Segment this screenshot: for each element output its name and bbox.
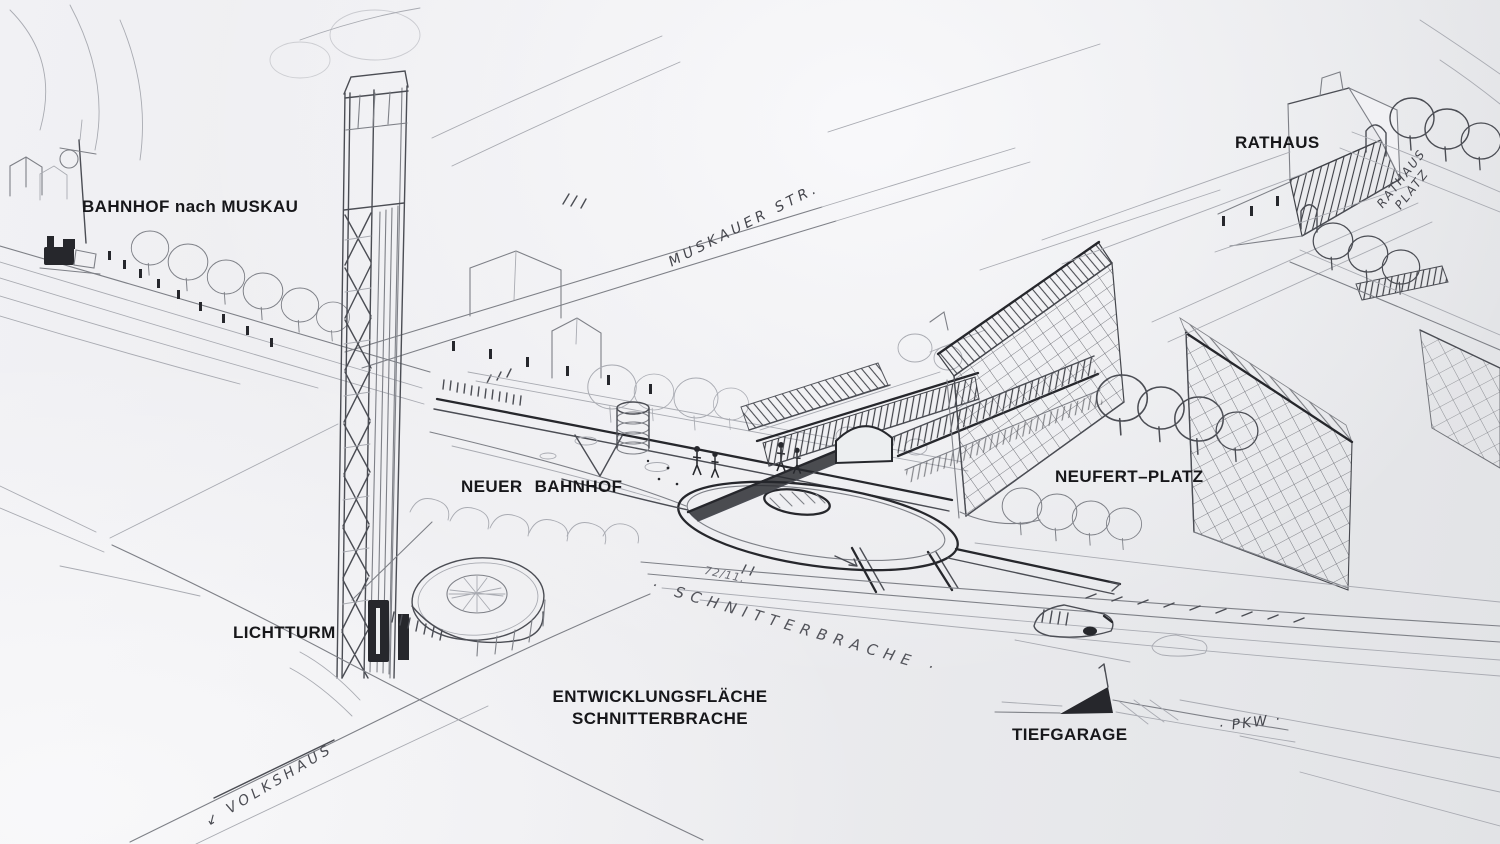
trees-plaza-south bbox=[1002, 488, 1141, 550]
label-neuer-bahnhof: NEUER BAHNHOF bbox=[461, 477, 622, 497]
trees-railway bbox=[131, 231, 349, 341]
station-platform bbox=[352, 372, 968, 600]
plaza-ellipse bbox=[562, 467, 1120, 594]
round-pavilion bbox=[409, 553, 546, 656]
label-lichtturm: LICHTTURM bbox=[233, 623, 336, 643]
label-entwicklungsflaeche-line1: ENTWICKLUNGSFLÄCHE bbox=[500, 686, 820, 708]
sketch-page: BAHNHOF nach MUSKAU RATHAUS NEUER BAHNHO… bbox=[0, 0, 1500, 844]
label-entwicklungsflaeche-line2: SCHNITTERBRACHE bbox=[500, 708, 820, 730]
label-entwicklungsflaeche-schnitterbrache: ENTWICKLUNGSFLÄCHE SCHNITTERBRACHE bbox=[500, 686, 820, 730]
right-building bbox=[1180, 318, 1500, 590]
label-neufert-platz: NEUFERT–PLATZ bbox=[1055, 467, 1203, 487]
muskauer-strasse bbox=[345, 148, 1030, 383]
lichtturm-tower bbox=[290, 71, 409, 716]
trees-platform-south bbox=[410, 499, 639, 545]
label-rathaus: RATHAUS bbox=[1235, 133, 1320, 153]
label-bahnhof-nach-muskau: BAHNHOF nach MUSKAU bbox=[82, 197, 298, 217]
label-tiefgarage: TIEFGARAGE bbox=[1012, 725, 1127, 745]
